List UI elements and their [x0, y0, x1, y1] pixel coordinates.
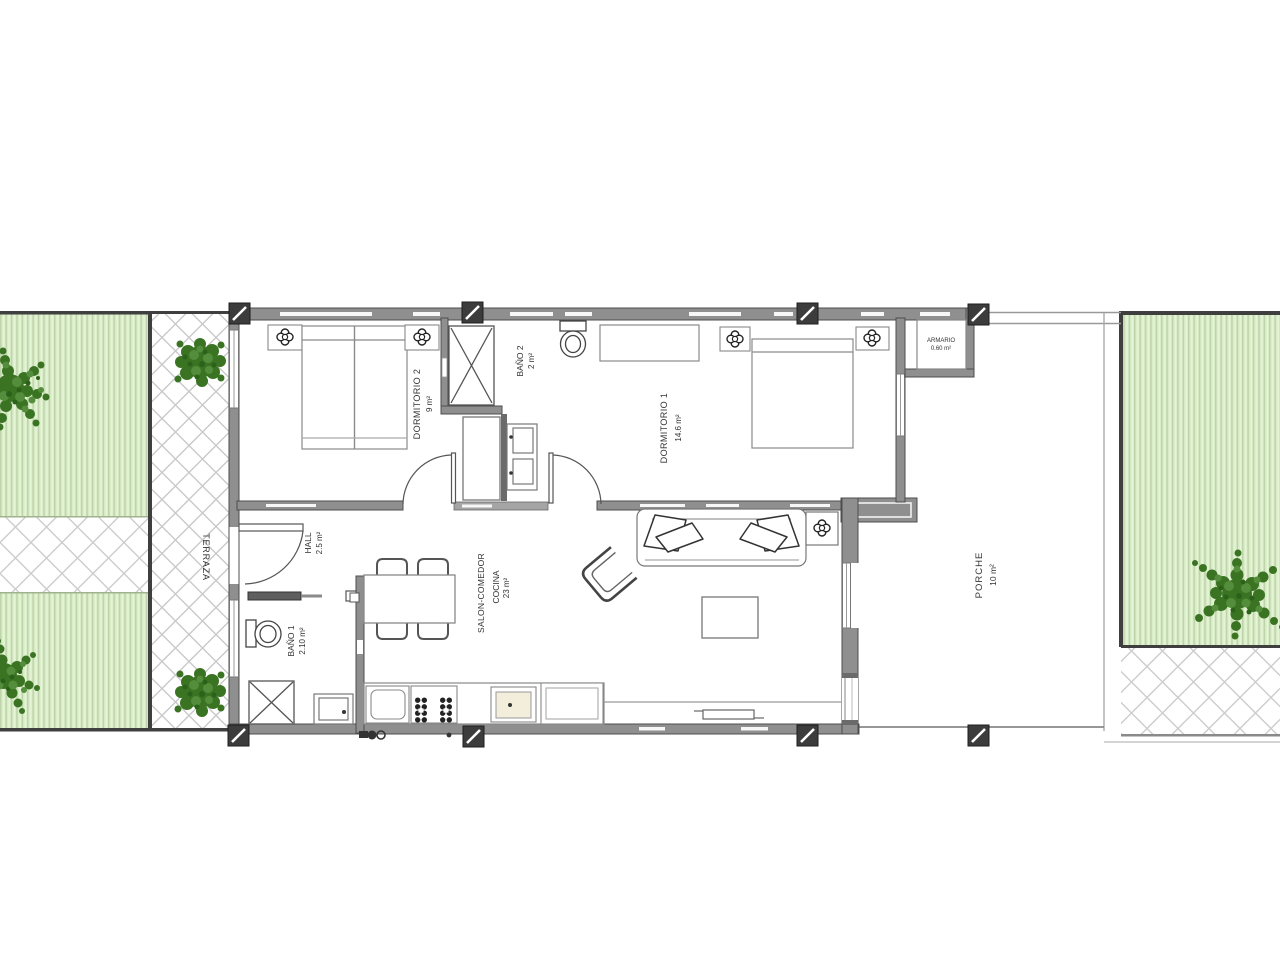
svg-text:COCINA: COCINA	[491, 570, 501, 603]
svg-text:14.6 m²: 14.6 m²	[674, 414, 683, 441]
svg-text:2.5 m²: 2.5 m²	[315, 531, 324, 554]
svg-text:DORMITORIO 2: DORMITORIO 2	[412, 369, 422, 440]
svg-text:PORCHE: PORCHE	[974, 552, 985, 599]
svg-text:BAÑO 1: BAÑO 1	[286, 625, 296, 656]
svg-text:SALON-COMEDOR: SALON-COMEDOR	[476, 553, 486, 633]
svg-text:HALL: HALL	[303, 532, 313, 554]
svg-text:0.60 m²: 0.60 m²	[931, 346, 951, 352]
svg-text:9 m²: 9 m²	[425, 396, 434, 412]
svg-text:2.10 m²: 2.10 m²	[298, 627, 307, 654]
svg-text:DORMITORIO 1: DORMITORIO 1	[659, 393, 669, 464]
svg-text:ARMARIO: ARMARIO	[927, 338, 955, 344]
svg-text:10 m²: 10 m²	[988, 564, 998, 586]
svg-text:2 m²: 2 m²	[527, 353, 536, 369]
svg-text:TERRAZA: TERRAZA	[201, 533, 211, 581]
svg-text:23 m²: 23 m²	[502, 577, 511, 598]
svg-text:BAÑO 2: BAÑO 2	[515, 345, 525, 376]
